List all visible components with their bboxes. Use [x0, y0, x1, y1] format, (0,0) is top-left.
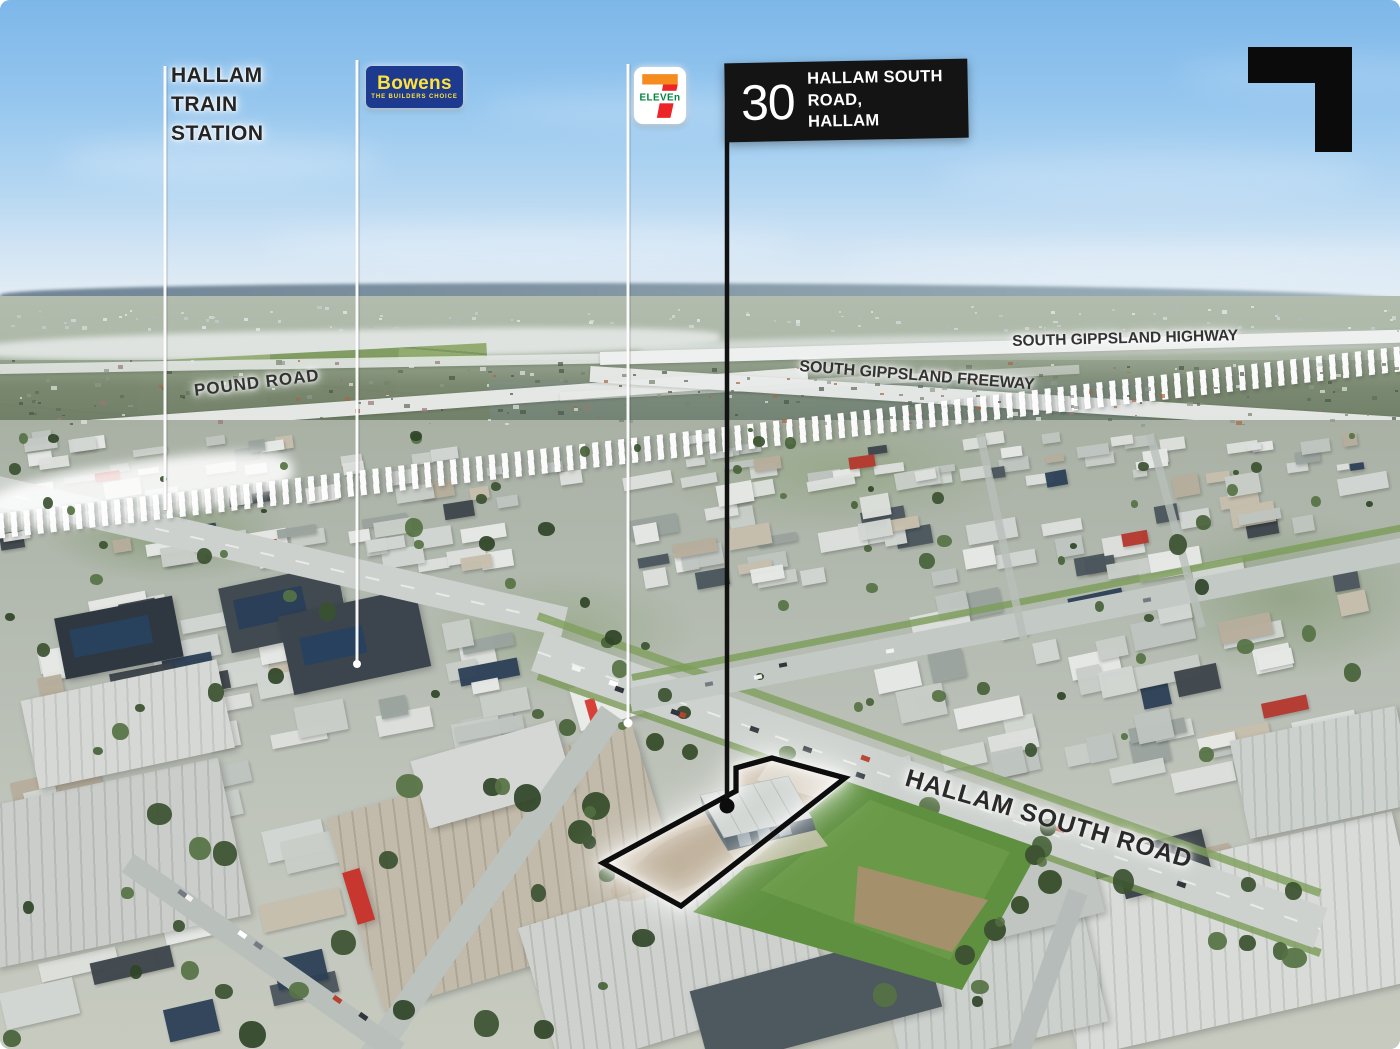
property-suburb: HALLAM — [808, 109, 969, 134]
vehicle — [238, 930, 248, 939]
seven-eleven-logo-graphic: ELEVEn — [639, 71, 681, 120]
vehicle — [332, 994, 342, 1003]
bowens-tagline: THE BUILDERS CHOICE — [371, 94, 457, 100]
vehicle — [885, 648, 894, 653]
seven-eleven-logo: ELEVEn — [634, 67, 686, 124]
vehicle — [856, 772, 866, 779]
train-station-label-line2: TRAIN — [171, 91, 264, 120]
vehicle — [253, 941, 263, 950]
bowens-logo: Bowens THE BUILDERS CHOICE — [366, 66, 463, 108]
aerial-property-photo: POUND ROAD SOUTH GIPPSLAND HIGHWAY SOUTH… — [0, 0, 1400, 1049]
vehicle — [861, 755, 871, 762]
train-station-label-line3: STATION — [171, 120, 264, 149]
vehicle — [754, 674, 763, 679]
vehicle — [358, 1012, 368, 1021]
vehicle — [802, 745, 812, 752]
train-station-label-line1: HALLAM — [171, 62, 264, 91]
vehicle — [778, 663, 787, 668]
vehicle — [1177, 881, 1187, 888]
vehicle — [750, 725, 760, 732]
vehicle — [705, 682, 714, 687]
train-station-label: HALLAM TRAIN STATION — [171, 62, 264, 149]
vehicle — [572, 664, 582, 671]
property-street: HALLAM SOUTH ROAD, — [807, 66, 968, 112]
seven-numeral-bar — [642, 74, 677, 84]
bowens-wordmark: Bowens — [377, 74, 452, 93]
seven-eleven-wordmark: ELEVEn — [640, 93, 681, 104]
agency-logo-mark — [1315, 47, 1352, 152]
property-number: 30 — [741, 77, 796, 128]
property-address: HALLAM SOUTH ROAD, HALLAM — [807, 66, 969, 133]
car-layer — [0, 0, 1400, 1049]
vehicle — [1143, 597, 1152, 602]
property-address-callout: 30 HALLAM SOUTH ROAD, HALLAM — [724, 59, 968, 143]
vehicle — [614, 686, 624, 693]
